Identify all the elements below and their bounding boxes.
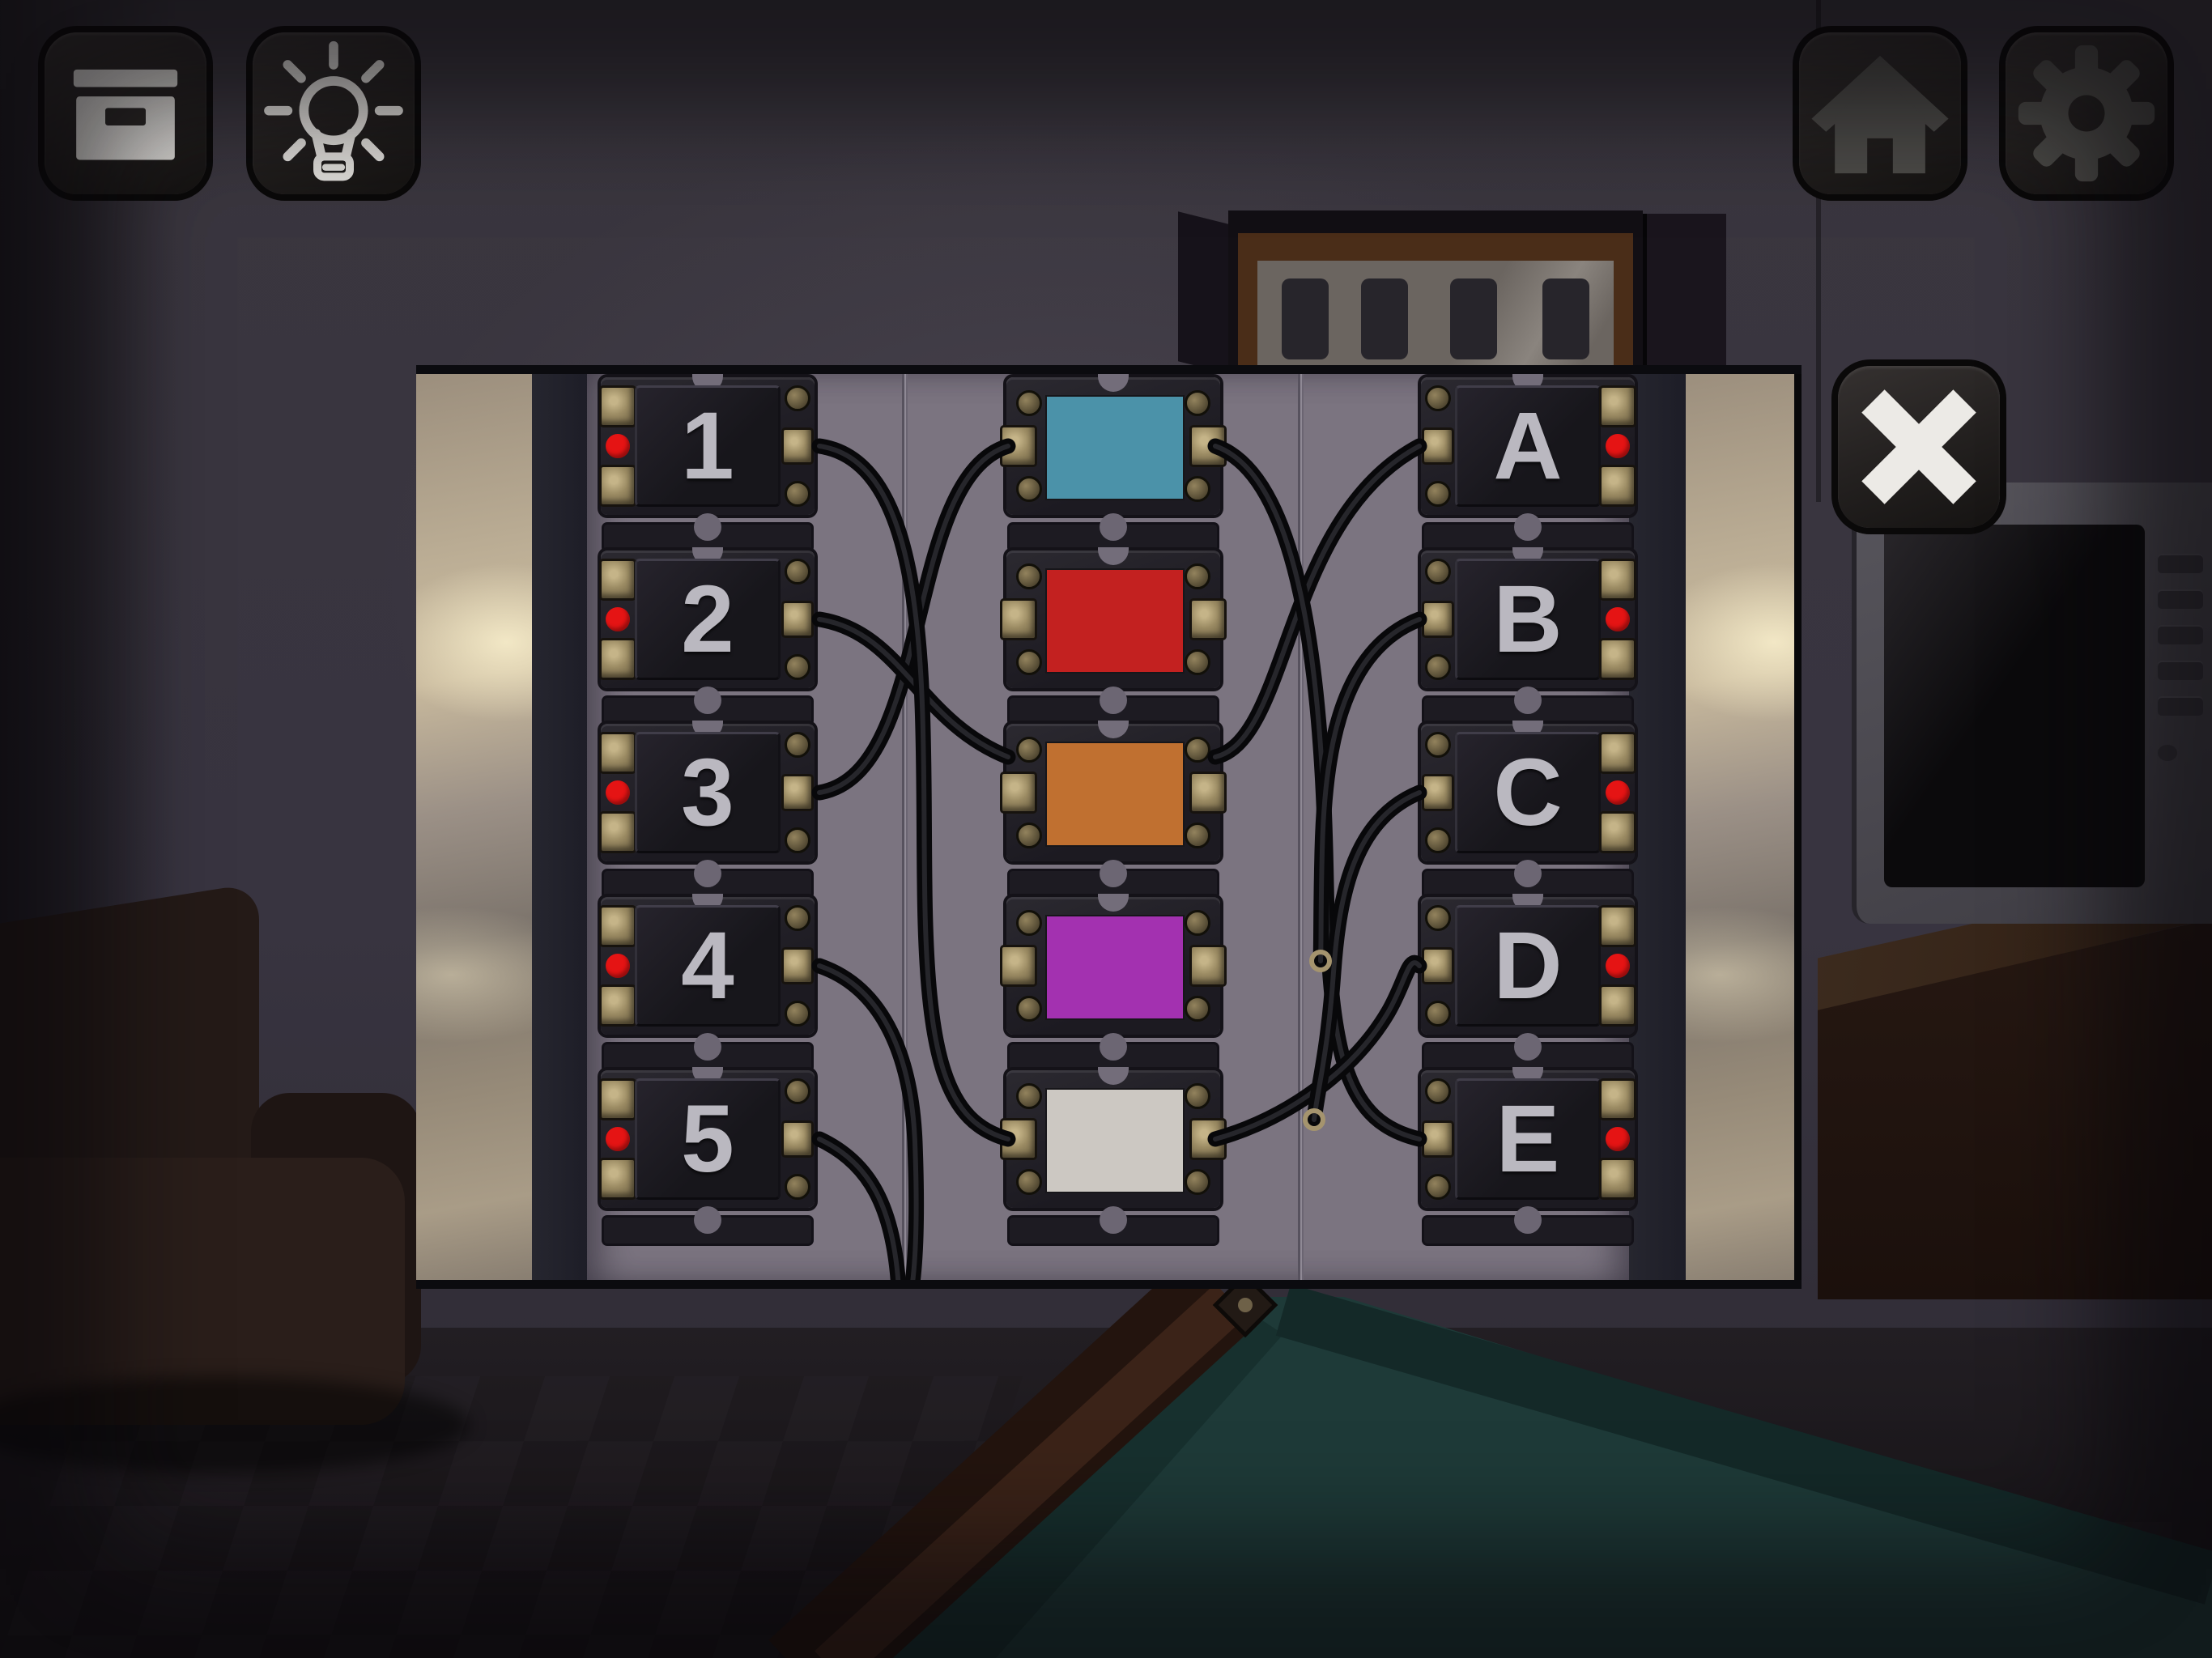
- color-block-orange[interactable]: [1006, 724, 1220, 861]
- terminal-label: 5: [681, 1091, 734, 1187]
- terminal-5[interactable]: 5: [601, 1070, 815, 1208]
- terminal-B[interactable]: B: [1421, 551, 1635, 688]
- photo-edge: [1794, 365, 1802, 1289]
- led-indicator: [606, 607, 630, 631]
- close-x-icon: [1838, 366, 2000, 528]
- wire-post[interactable]: [1189, 1118, 1227, 1160]
- color-swatch-orange: [1045, 742, 1185, 847]
- color-swatch-white: [1045, 1088, 1185, 1193]
- home-icon: [1799, 32, 1961, 194]
- wire-post[interactable]: [1000, 1118, 1037, 1160]
- color-swatch-teal: [1045, 395, 1185, 500]
- connector: [599, 465, 636, 507]
- wire-post[interactable]: [1189, 598, 1227, 640]
- wire-post[interactable]: [1422, 774, 1454, 811]
- wiring-panel-photo: 1 2 3 4 5: [416, 365, 1802, 1289]
- wire-post[interactable]: [781, 947, 814, 984]
- connector: [599, 385, 636, 427]
- terminal-label: 3: [681, 745, 734, 840]
- wire-post[interactable]: [1422, 947, 1454, 984]
- terminal-E[interactable]: E: [1421, 1070, 1635, 1208]
- led-indicator: [606, 434, 630, 458]
- terminal-label: D: [1493, 918, 1562, 1014]
- terminal-3[interactable]: 3: [601, 724, 815, 861]
- terminal-D[interactable]: D: [1421, 897, 1635, 1035]
- terminal-1[interactable]: 1: [601, 377, 815, 515]
- led-indicator: [1606, 434, 1630, 458]
- terminal-label: 1: [681, 398, 734, 494]
- color-swatch-purple: [1045, 915, 1185, 1020]
- color-block-purple[interactable]: [1006, 897, 1220, 1035]
- lightbulb-icon: [253, 32, 415, 194]
- game-screen: 1 2 3 4 5: [0, 0, 2212, 1658]
- wire-post[interactable]: [1189, 945, 1227, 987]
- wire-post[interactable]: [1000, 772, 1037, 814]
- gear-icon: [2006, 32, 2167, 194]
- storage-box-icon: [45, 32, 206, 194]
- wire-post[interactable]: [1422, 601, 1454, 638]
- led-indicator: [606, 954, 630, 978]
- led-indicator: [1606, 780, 1630, 805]
- terminal-C[interactable]: C: [1421, 724, 1635, 861]
- terminal-label: 4: [681, 918, 734, 1014]
- wire-post[interactable]: [1000, 425, 1037, 467]
- screw-icon: [785, 385, 810, 411]
- led-indicator: [1606, 1127, 1630, 1151]
- wire-post[interactable]: [1422, 427, 1454, 465]
- wire-post[interactable]: [781, 601, 814, 638]
- wire-post[interactable]: [1189, 772, 1227, 814]
- panel-dark-trim: [532, 365, 589, 1289]
- color-block-white[interactable]: [1006, 1070, 1220, 1208]
- terminal-4[interactable]: 4: [601, 897, 815, 1035]
- terminal-label: B: [1493, 572, 1562, 667]
- wire-post[interactable]: [1000, 945, 1037, 987]
- home-button[interactable]: [1799, 32, 1961, 194]
- terminal-2[interactable]: 2: [601, 551, 815, 688]
- terminal-label: C: [1493, 745, 1562, 840]
- panel-metal-edge: [1686, 365, 1799, 1289]
- led-indicator: [1606, 954, 1630, 978]
- hint-button[interactable]: [253, 32, 415, 194]
- wire-post[interactable]: [781, 1120, 814, 1158]
- panel-seam: [1298, 365, 1304, 1289]
- terminal-label: A: [1493, 398, 1562, 494]
- wire-post[interactable]: [1422, 1120, 1454, 1158]
- color-block-red[interactable]: [1006, 551, 1220, 688]
- screw-icon: [785, 481, 810, 507]
- wire-post[interactable]: [1000, 598, 1037, 640]
- led-indicator: [1606, 607, 1630, 631]
- settings-button[interactable]: [2006, 32, 2167, 194]
- wire-post[interactable]: [781, 774, 814, 811]
- led-indicator: [606, 1127, 630, 1151]
- close-button[interactable]: [1838, 366, 2000, 528]
- panel-metal-edge: [416, 365, 532, 1289]
- wire-post[interactable]: [1189, 425, 1227, 467]
- terminal-label: 2: [681, 572, 734, 667]
- photo-edge: [416, 1280, 1802, 1289]
- terminal-label: E: [1496, 1091, 1560, 1187]
- led-indicator: [606, 780, 630, 805]
- color-swatch-red: [1045, 568, 1185, 674]
- color-block-teal[interactable]: [1006, 377, 1220, 515]
- panel-dark-trim: [1629, 365, 1686, 1289]
- wire-post[interactable]: [781, 427, 814, 465]
- terminal-A[interactable]: A: [1421, 377, 1635, 515]
- inventory-button[interactable]: [45, 32, 206, 194]
- panel-seam: [902, 365, 908, 1289]
- photo-edge: [416, 365, 1802, 374]
